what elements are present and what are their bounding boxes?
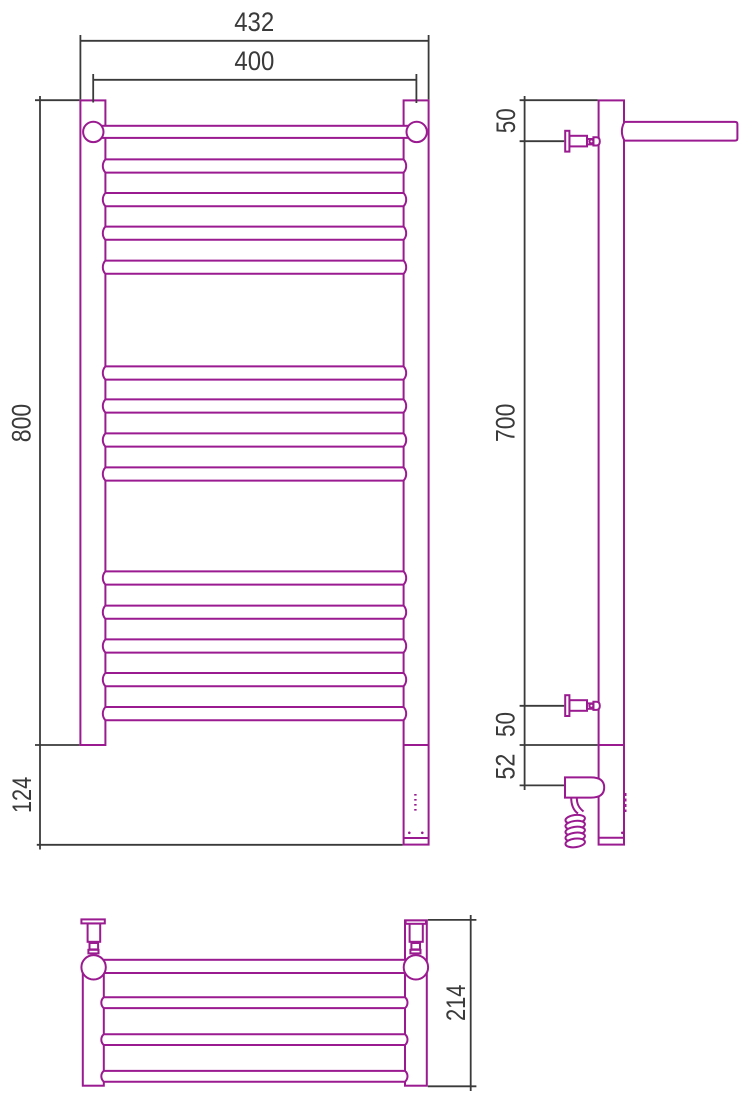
svg-text:214: 214 [441, 985, 471, 1022]
svg-text:800: 800 [7, 404, 37, 443]
svg-text:50: 50 [491, 108, 521, 133]
svg-text:432: 432 [234, 7, 274, 37]
svg-text:700: 700 [491, 404, 521, 442]
svg-text:50: 50 [491, 712, 521, 737]
svg-text:52: 52 [491, 754, 521, 780]
svg-text:124: 124 [7, 777, 37, 813]
svg-text:400: 400 [234, 46, 274, 76]
